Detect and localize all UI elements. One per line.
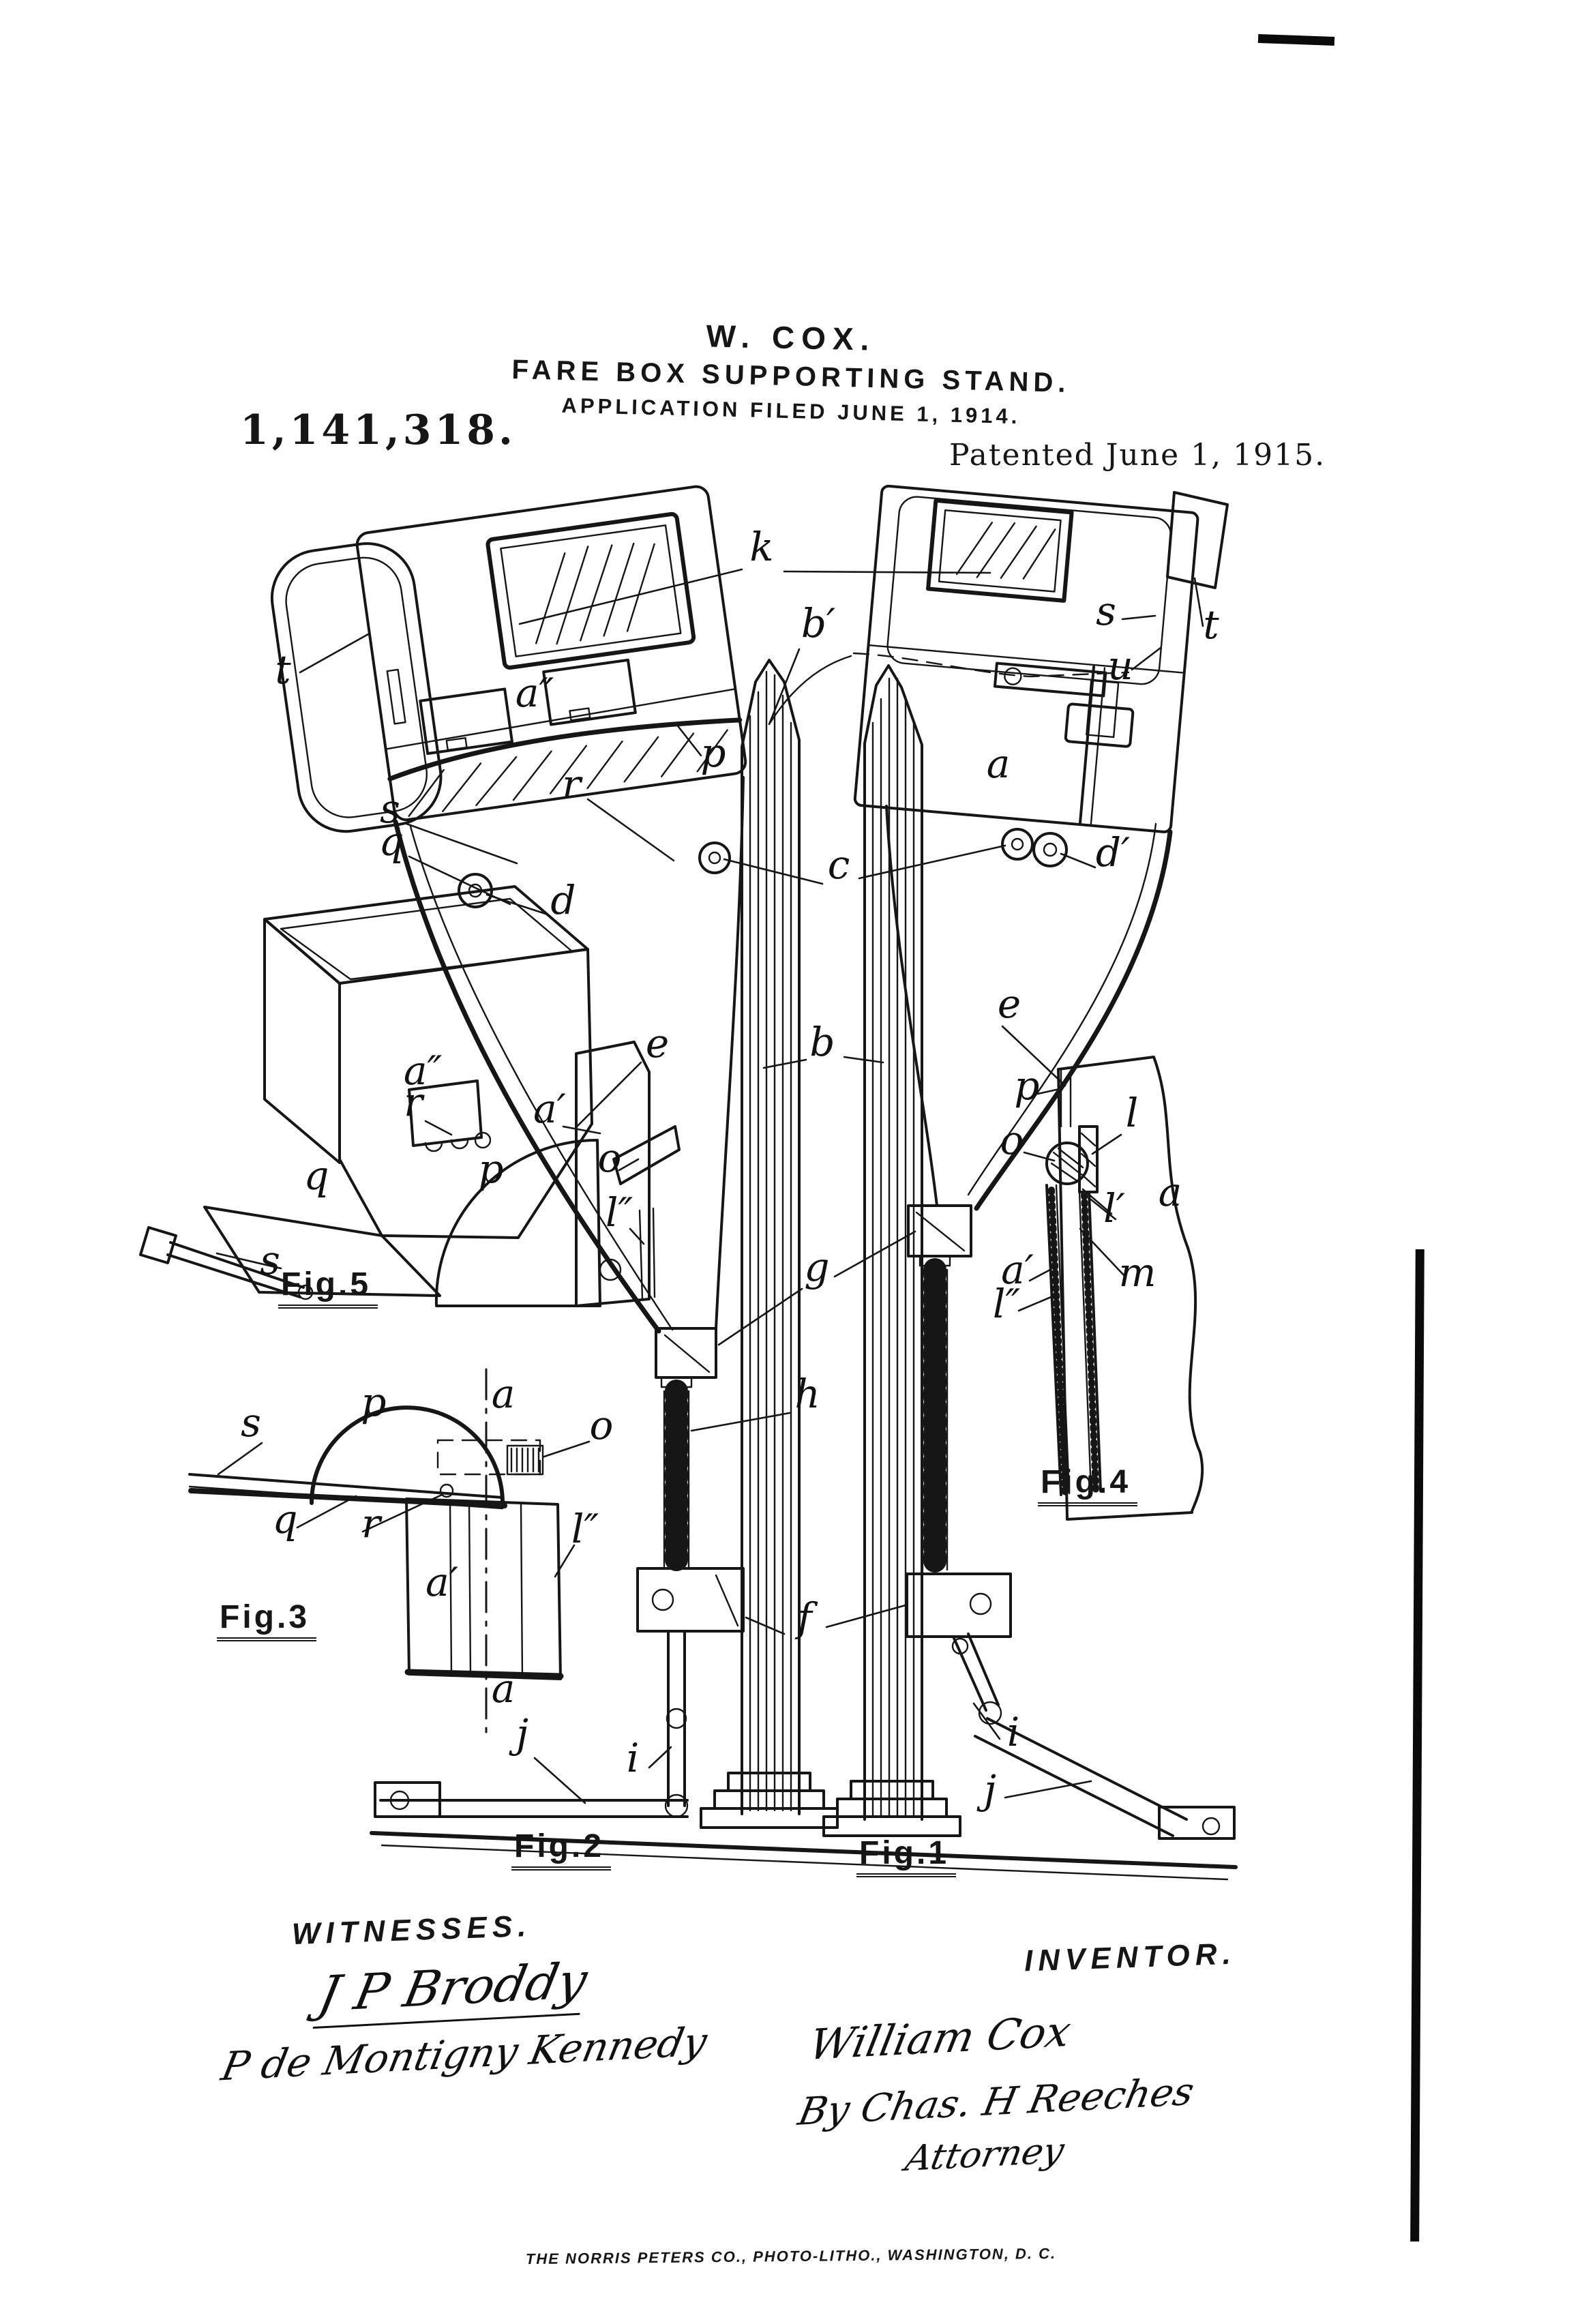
part-label-j: j: [976, 1766, 996, 1813]
part-label-f: f: [794, 1594, 818, 1641]
part-label-a: a: [492, 1665, 516, 1712]
part-label-l: l″: [571, 1506, 599, 1552]
part-label-a: a: [492, 1371, 516, 1417]
part-label-r: r: [404, 1079, 425, 1125]
patent-drawing: kb′tstua″prsqcdd′aebea″ra′qpol″spoll′ama…: [0, 0, 1582, 2324]
part-label-d: d: [550, 877, 576, 923]
part-label-d: d′: [1096, 829, 1130, 876]
part-label-a: a: [987, 741, 1011, 787]
part-label-c: c: [828, 841, 850, 888]
part-label-m: m: [1119, 1249, 1156, 1296]
part-label-a: a′: [426, 1559, 458, 1605]
part-label-t: t: [275, 646, 291, 693]
part-label-a: a″: [516, 670, 554, 716]
part-label-q: q: [303, 1152, 329, 1199]
part-label-s: s: [241, 1399, 261, 1446]
figure-caption-fig3: Fig.3: [217, 1598, 316, 1641]
part-label-b: b: [809, 1019, 835, 1065]
part-label-r: r: [562, 761, 583, 807]
part-label-e: e: [646, 1020, 669, 1067]
attorney-label: Attorney: [902, 2130, 1068, 2179]
part-label-q: q: [378, 818, 404, 865]
part-label-l: l″: [606, 1189, 633, 1236]
part-label-h: h: [794, 1371, 820, 1417]
part-label-o: o: [590, 1402, 614, 1448]
part-label-u: u: [1107, 642, 1133, 689]
part-label-s: s: [260, 1237, 280, 1283]
part-label-p: p: [478, 1146, 503, 1192]
part-label-p: p: [700, 730, 726, 776]
patent-page: W. COX. FARE BOX SUPPORTING STAND. APPLI…: [0, 0, 1582, 2324]
part-label-p: p: [1014, 1062, 1039, 1109]
figure-caption-fig2: Fig.2: [511, 1828, 611, 1871]
part-label-j: j: [509, 1710, 528, 1757]
part-label-t: t: [1203, 601, 1219, 648]
part-label-i: i: [1007, 1709, 1020, 1755]
part-label-p: p: [361, 1379, 386, 1425]
part-label-o: o: [598, 1135, 622, 1181]
part-label-a: a: [1159, 1169, 1182, 1215]
part-label-r: r: [361, 1500, 383, 1547]
figure-caption-fig1: Fig.1: [856, 1834, 956, 1877]
part-label-l: l″: [993, 1281, 1021, 1327]
figure-caption-fig4: Fig.4: [1038, 1463, 1137, 1506]
part-label-l: l′: [1103, 1185, 1125, 1232]
figure-caption-fig5: Fig.5: [278, 1266, 378, 1309]
part-label-i: i: [627, 1735, 640, 1781]
part-label-k: k: [749, 524, 773, 570]
part-label-q: q: [272, 1496, 297, 1543]
part-label-g: g: [804, 1244, 829, 1290]
part-label-s: s: [1096, 588, 1116, 634]
part-label-b: b′: [801, 600, 835, 646]
part-label-a: a′: [533, 1086, 566, 1132]
part-label-o: o: [1000, 1117, 1024, 1163]
part-label-e: e: [998, 981, 1021, 1027]
part-label-l: l: [1126, 1090, 1139, 1136]
